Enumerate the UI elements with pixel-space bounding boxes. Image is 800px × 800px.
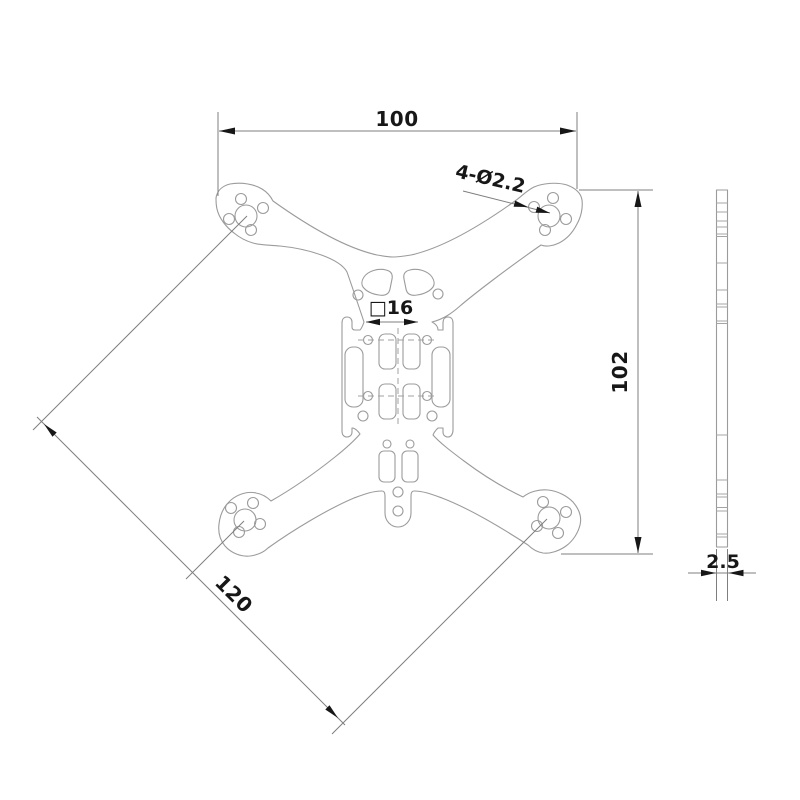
drone-frame-drawing: 100 102 120 □16 4-Ø2.2 2.5 [0, 0, 800, 800]
arrow-right-icon [404, 319, 418, 325]
motor-mount-top-left [224, 194, 269, 236]
dim-height-102: 102 [561, 190, 653, 554]
thickness-label: 2.5 [706, 551, 740, 573]
arrow-right-icon [560, 128, 576, 135]
frame-outline [216, 183, 582, 556]
arrow-up-icon [635, 191, 642, 207]
side-profile [717, 190, 728, 547]
dim-width-label: 100 [375, 107, 418, 131]
dim-diagonal-120: 120 [33, 216, 547, 734]
arrow-down-icon [635, 537, 642, 553]
frame-top-view [216, 183, 582, 556]
dim-diagonal-label: 120 [210, 570, 258, 618]
technical-drawing-page: 100 102 120 □16 4-Ø2.2 2.5 [0, 0, 800, 800]
leader-arrow-icon [514, 201, 528, 207]
motor-mount-bottom-left [226, 498, 266, 538]
frame-side-view [717, 190, 728, 547]
side-profile-edges [717, 203, 728, 537]
motor-mount-bottom-right [532, 497, 572, 539]
hole-callout-label: 4-Ø2.2 [453, 160, 527, 197]
stack-hole-centerlines [358, 328, 437, 424]
dim-height-label: 102 [608, 350, 632, 393]
square-dim-label: □16 [369, 297, 413, 319]
arrow-left-icon [219, 128, 235, 135]
dim-square-16: □16 [366, 297, 418, 325]
upper-deck-cutouts [353, 269, 443, 300]
dim-thickness-2-5: 2.5 [688, 549, 756, 601]
center-plate-cutouts [345, 334, 450, 421]
motor-mount-top-right [529, 193, 572, 236]
arrow-left-icon [366, 319, 380, 325]
